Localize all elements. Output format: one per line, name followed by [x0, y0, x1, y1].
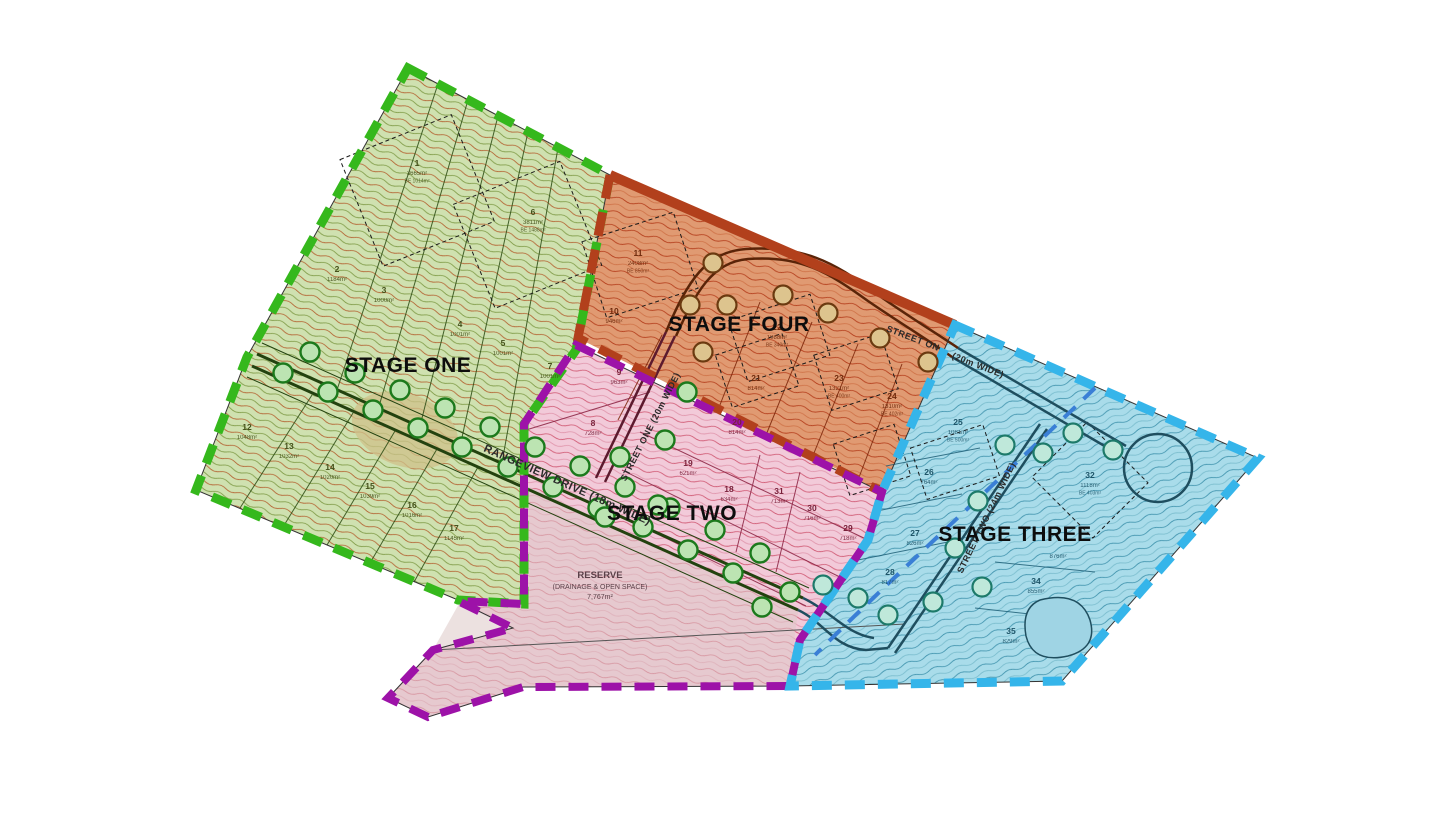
lot-number: 20 — [732, 417, 742, 427]
plan-svg: 13665m²BE 1014m²21184m²31000m²41001m²510… — [0, 0, 1434, 837]
lot-area: 826m² — [906, 541, 923, 547]
tree-icon — [453, 438, 472, 457]
lot-area: 764m² — [920, 480, 937, 486]
lot-number: 2 — [335, 264, 340, 274]
lot-number: 5 — [501, 338, 506, 348]
tree-icon — [849, 589, 868, 608]
lot-number: 21 — [751, 373, 761, 383]
tree-icon — [751, 544, 770, 563]
reserve-label: RESERVE — [577, 570, 622, 581]
lot-number: 14 — [325, 462, 335, 472]
lot-building-envelope-area: BE 1488m² — [520, 228, 545, 234]
lot-area: 3665m² — [407, 171, 427, 177]
lot-number: 35 — [1006, 626, 1016, 636]
tree-icon — [364, 401, 383, 420]
lot-number: 29 — [843, 523, 853, 533]
lot-number: 16 — [407, 500, 417, 510]
lot-number: 19 — [683, 458, 693, 468]
lot-number: 9 — [617, 367, 622, 377]
lot-number: 13 — [284, 441, 294, 451]
tree-icon — [301, 343, 320, 362]
lot-area: 1039m² — [360, 494, 380, 500]
lot-number: 15 — [365, 481, 375, 491]
reserve-area-label: 7,767m² — [587, 594, 613, 601]
lot-area: 1001m² — [450, 332, 470, 338]
lot-area: 1016m² — [402, 513, 422, 519]
tree-icon — [526, 438, 545, 457]
tree-icon — [436, 399, 455, 418]
lot-number: 17 — [449, 523, 459, 533]
tree-icon — [718, 296, 737, 315]
tree-icon — [274, 364, 293, 383]
lot-area: 814m² — [747, 386, 764, 392]
lot-number: 31 — [774, 486, 784, 496]
lot-area: 713m² — [770, 499, 787, 505]
lot-area: 716m² — [803, 516, 820, 522]
lot-area: 1321m² — [829, 386, 849, 392]
tree-icon — [924, 593, 943, 612]
lot-area: 1081m² — [948, 430, 968, 436]
lot-number: 18 — [724, 484, 734, 494]
tree-icon — [973, 578, 992, 597]
lot-building-envelope-area: BE 402m² — [881, 412, 904, 418]
tree-icon — [814, 576, 833, 595]
lot-area: 1001m² — [493, 351, 513, 357]
lot-number: 26 — [924, 467, 934, 477]
lot-number: 11 — [634, 248, 643, 258]
lot-number: 12 — [242, 422, 252, 432]
stage-title-stage-two: STAGE TWO — [607, 502, 737, 525]
lot-building-envelope-area: BE 340m² — [766, 343, 789, 349]
lot-number: 8 — [591, 418, 596, 428]
lot-area: 855m² — [1027, 589, 1044, 595]
lot-area: 814m² — [728, 430, 745, 436]
lot-number: 25 — [953, 417, 963, 427]
lot-building-envelope-area: BE 500m² — [947, 438, 970, 444]
tree-icon — [1034, 444, 1053, 463]
lot-area: 1001m² — [540, 374, 560, 380]
subdivision-staging-plan: 13665m²BE 1014m²21184m²31000m²41001m²510… — [0, 0, 1434, 837]
tree-icon — [879, 606, 898, 625]
tree-icon — [678, 383, 697, 402]
lot-area: 718m² — [839, 536, 856, 542]
lot-number: 3 — [382, 285, 387, 295]
lot-area: 829m² — [1002, 639, 1019, 645]
lot-building-envelope-area: BE 1014m² — [404, 179, 429, 185]
lot-building-envelope-area: BE 400m² — [828, 394, 851, 400]
lot-area: 1020m² — [320, 475, 340, 481]
tree-icon — [996, 436, 1015, 455]
tree-icon — [481, 418, 500, 437]
lot-area: 1118m² — [1080, 483, 1099, 489]
stage-title-stage-four: STAGE FOUR — [668, 313, 809, 336]
tree-icon — [704, 254, 723, 273]
tree-icon — [753, 598, 772, 617]
lot-area: 3811m² — [523, 220, 543, 226]
lot-building-envelope-area: BE 403m² — [1079, 491, 1102, 497]
lot-number: 27 — [910, 528, 920, 538]
tree-icon — [919, 353, 938, 372]
tree-icon — [571, 457, 590, 476]
tree-icon — [1064, 424, 1083, 443]
lot-area: 876m² — [1049, 554, 1066, 560]
lot-building-envelope-area: BE 850m² — [627, 269, 650, 275]
lot-number: 34 — [1031, 576, 1041, 586]
lot-area: 963m² — [610, 380, 627, 386]
lot-area: 1048m² — [237, 435, 257, 441]
lot-number: 32 — [1085, 470, 1095, 480]
lot-number: 23 — [834, 373, 844, 383]
tree-icon — [679, 541, 698, 560]
lot-number: 10 — [609, 306, 619, 316]
lot-number: 30 — [807, 503, 817, 513]
lot-area: 946m² — [605, 319, 622, 325]
stage-title-stage-one: STAGE ONE — [345, 354, 472, 377]
tree-icon — [319, 383, 338, 402]
basin-outline — [1025, 598, 1092, 658]
tree-icon — [409, 419, 428, 438]
stage-title-stage-three: STAGE THREE — [938, 523, 1091, 546]
lot-area: 2408m² — [628, 261, 648, 267]
lot-area: 817m² — [881, 580, 898, 586]
lot-number: 7 — [548, 361, 553, 371]
lot-area: 1000m² — [374, 298, 394, 304]
lot-area: 621m² — [679, 471, 696, 477]
tree-icon — [724, 564, 743, 583]
tree-icon — [781, 583, 800, 602]
lot-area: 1310m² — [882, 404, 902, 410]
tree-icon — [656, 431, 675, 450]
tree-icon — [681, 296, 700, 315]
tree-icon — [1104, 441, 1123, 460]
lot-area: 728m² — [584, 431, 601, 437]
lot-area: 1145m² — [444, 536, 464, 542]
lot-area: 1032m² — [279, 454, 299, 460]
lot-area: 1184m² — [327, 277, 347, 283]
lot-number: 28 — [885, 567, 895, 577]
lot-number: 1 — [415, 158, 420, 168]
tree-icon — [694, 343, 713, 362]
lot-number: 6 — [531, 207, 536, 217]
reserve-sublabel: (DRAINAGE & OPEN SPACE) — [553, 584, 648, 591]
tree-icon — [819, 304, 838, 323]
lot-number: 24 — [887, 391, 897, 401]
tree-icon — [774, 286, 793, 305]
tree-icon — [391, 381, 410, 400]
lot-number: 4 — [458, 319, 463, 329]
